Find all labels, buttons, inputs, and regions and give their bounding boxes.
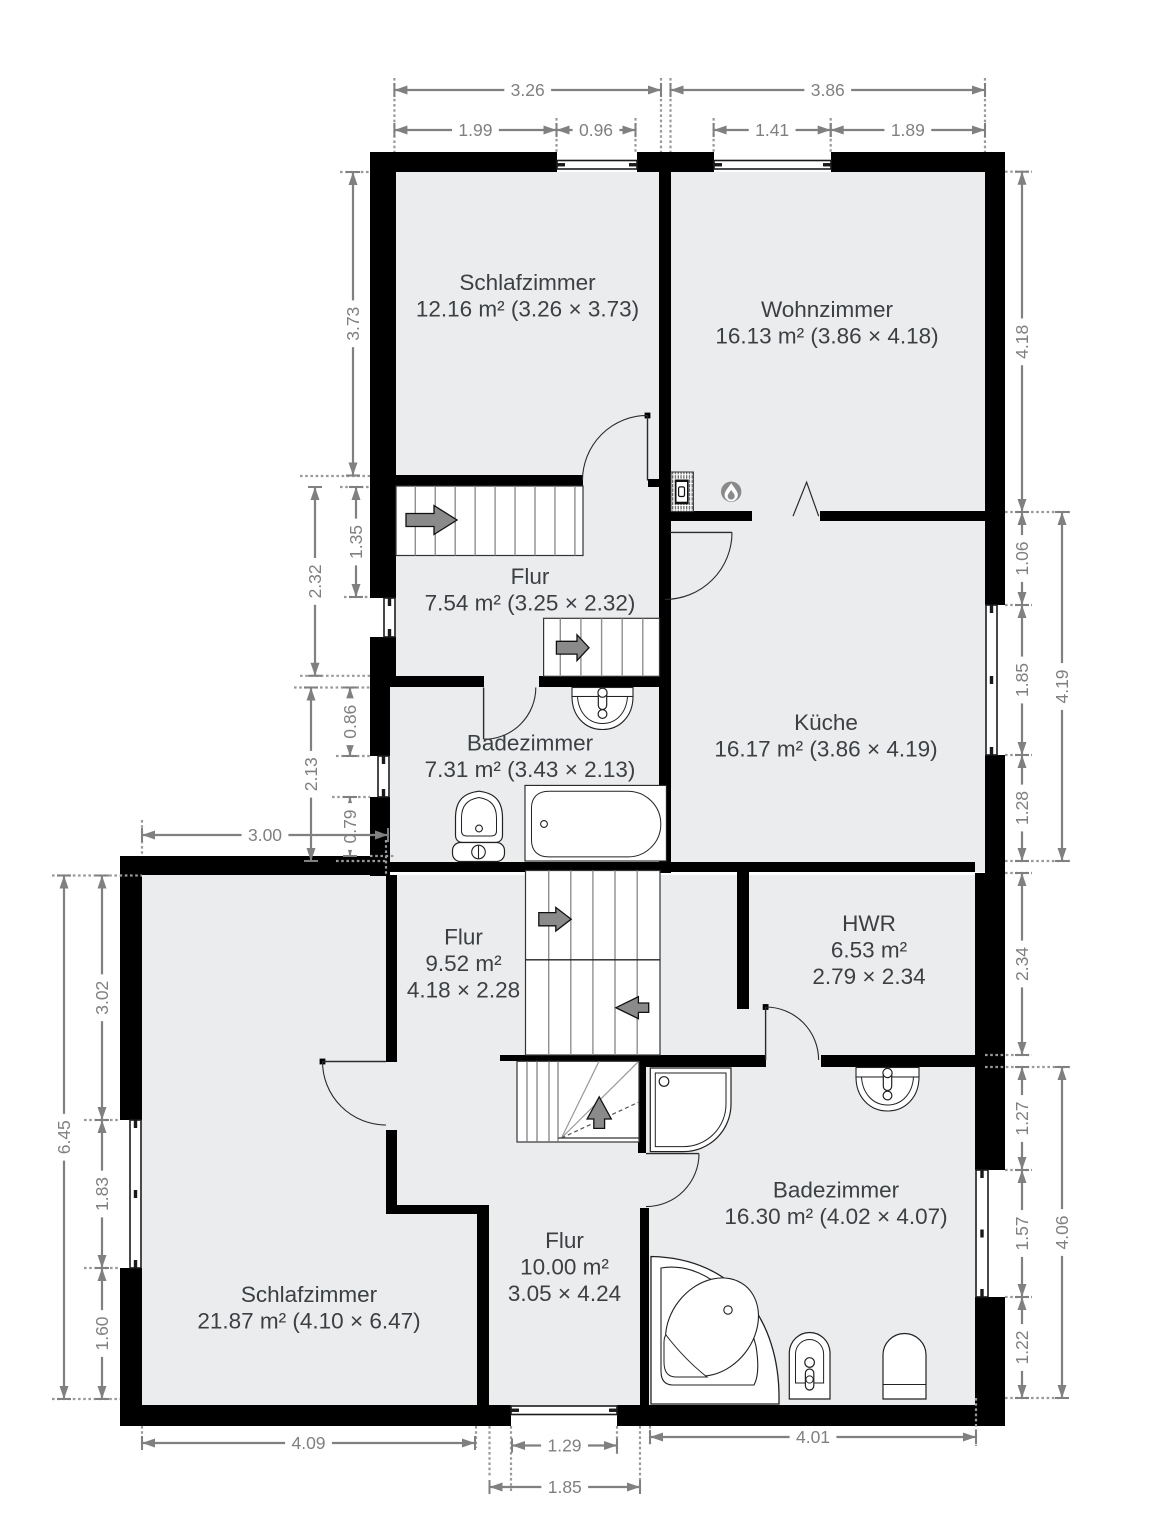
- svg-text:Wohnzimmer: Wohnzimmer: [761, 297, 894, 322]
- svg-text:1.85: 1.85: [548, 1477, 582, 1497]
- svg-text:Badezimmer: Badezimmer: [773, 1178, 900, 1203]
- svg-text:3.73: 3.73: [343, 307, 363, 341]
- svg-text:2.13: 2.13: [301, 757, 321, 791]
- svg-text:1.57: 1.57: [1012, 1216, 1032, 1250]
- svg-text:2.79 × 2.34: 2.79 × 2.34: [812, 964, 925, 989]
- svg-text:Schlafzimmer: Schlafzimmer: [241, 1282, 378, 1307]
- svg-text:6.45: 6.45: [54, 1120, 74, 1154]
- svg-text:1.83: 1.83: [92, 1177, 112, 1211]
- svg-text:1.27: 1.27: [1012, 1101, 1032, 1135]
- svg-text:4.01: 4.01: [796, 1427, 830, 1447]
- svg-text:6.53 m²: 6.53 m²: [831, 938, 908, 963]
- svg-text:1.99: 1.99: [458, 120, 492, 140]
- svg-text:1.60: 1.60: [92, 1316, 112, 1350]
- svg-text:7.54 m² (3.25 × 2.32): 7.54 m² (3.25 × 2.32): [425, 591, 636, 616]
- svg-text:Badezimmer: Badezimmer: [467, 731, 594, 756]
- svg-text:Küche: Küche: [794, 710, 858, 735]
- svg-text:Schlafzimmer: Schlafzimmer: [459, 270, 596, 295]
- svg-text:16.13 m² (3.86 × 4.18): 16.13 m² (3.86 × 4.18): [715, 324, 938, 349]
- svg-text:4.19: 4.19: [1052, 669, 1072, 703]
- svg-text:4.09: 4.09: [291, 1433, 325, 1453]
- svg-text:1.85: 1.85: [1012, 663, 1032, 697]
- svg-text:3.02: 3.02: [92, 981, 112, 1015]
- svg-text:21.87 m² (4.10 × 6.47): 21.87 m² (4.10 × 6.47): [197, 1309, 420, 1334]
- svg-text:1.29: 1.29: [547, 1436, 581, 1456]
- svg-text:2.32: 2.32: [305, 564, 325, 598]
- svg-text:HWR: HWR: [842, 911, 896, 936]
- svg-text:1.41: 1.41: [755, 120, 789, 140]
- svg-text:Flur: Flur: [444, 925, 483, 950]
- svg-text:4.18: 4.18: [1012, 325, 1032, 359]
- svg-text:Flur: Flur: [545, 1228, 584, 1253]
- svg-text:3.26: 3.26: [511, 80, 545, 100]
- svg-text:3.86: 3.86: [811, 80, 845, 100]
- svg-text:0.86: 0.86: [340, 705, 360, 739]
- svg-text:0.79: 0.79: [340, 809, 360, 843]
- svg-text:1.28: 1.28: [1012, 791, 1032, 825]
- svg-text:2.34: 2.34: [1012, 947, 1032, 981]
- svg-text:7.31 m² (3.43 × 2.13): 7.31 m² (3.43 × 2.13): [425, 757, 636, 782]
- svg-text:Flur: Flur: [511, 564, 550, 589]
- svg-text:4.18 × 2.28: 4.18 × 2.28: [407, 978, 520, 1003]
- svg-text:9.52 m²: 9.52 m²: [425, 951, 502, 976]
- svg-text:1.06: 1.06: [1012, 541, 1032, 575]
- svg-text:1.35: 1.35: [346, 525, 366, 559]
- svg-text:1.22: 1.22: [1012, 1330, 1032, 1364]
- svg-text:12.16 m² (3.26 × 3.73): 12.16 m² (3.26 × 3.73): [416, 297, 639, 322]
- svg-text:16.30 m² (4.02 × 4.07): 16.30 m² (4.02 × 4.07): [724, 1204, 947, 1229]
- svg-text:0.96: 0.96: [579, 120, 613, 140]
- svg-text:16.17 m² (3.86 × 4.19): 16.17 m² (3.86 × 4.19): [714, 737, 937, 762]
- svg-text:3.00: 3.00: [248, 825, 282, 845]
- svg-text:1.89: 1.89: [891, 120, 925, 140]
- svg-text:10.00 m²: 10.00 m²: [520, 1255, 609, 1280]
- svg-text:4.06: 4.06: [1052, 1215, 1072, 1249]
- svg-text:3.05 × 4.24: 3.05 × 4.24: [508, 1281, 621, 1306]
